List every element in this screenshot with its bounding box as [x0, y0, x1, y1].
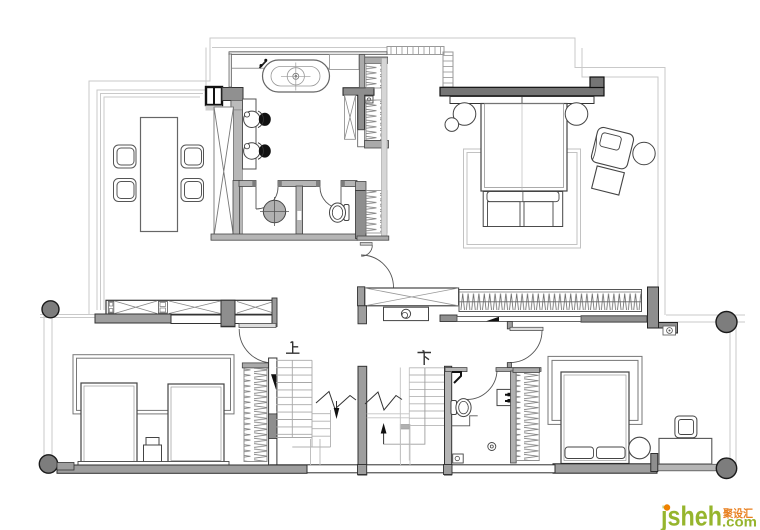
svg-text:.com: .com — [722, 515, 757, 530]
svg-text:jsheh: jsheh — [660, 501, 722, 530]
